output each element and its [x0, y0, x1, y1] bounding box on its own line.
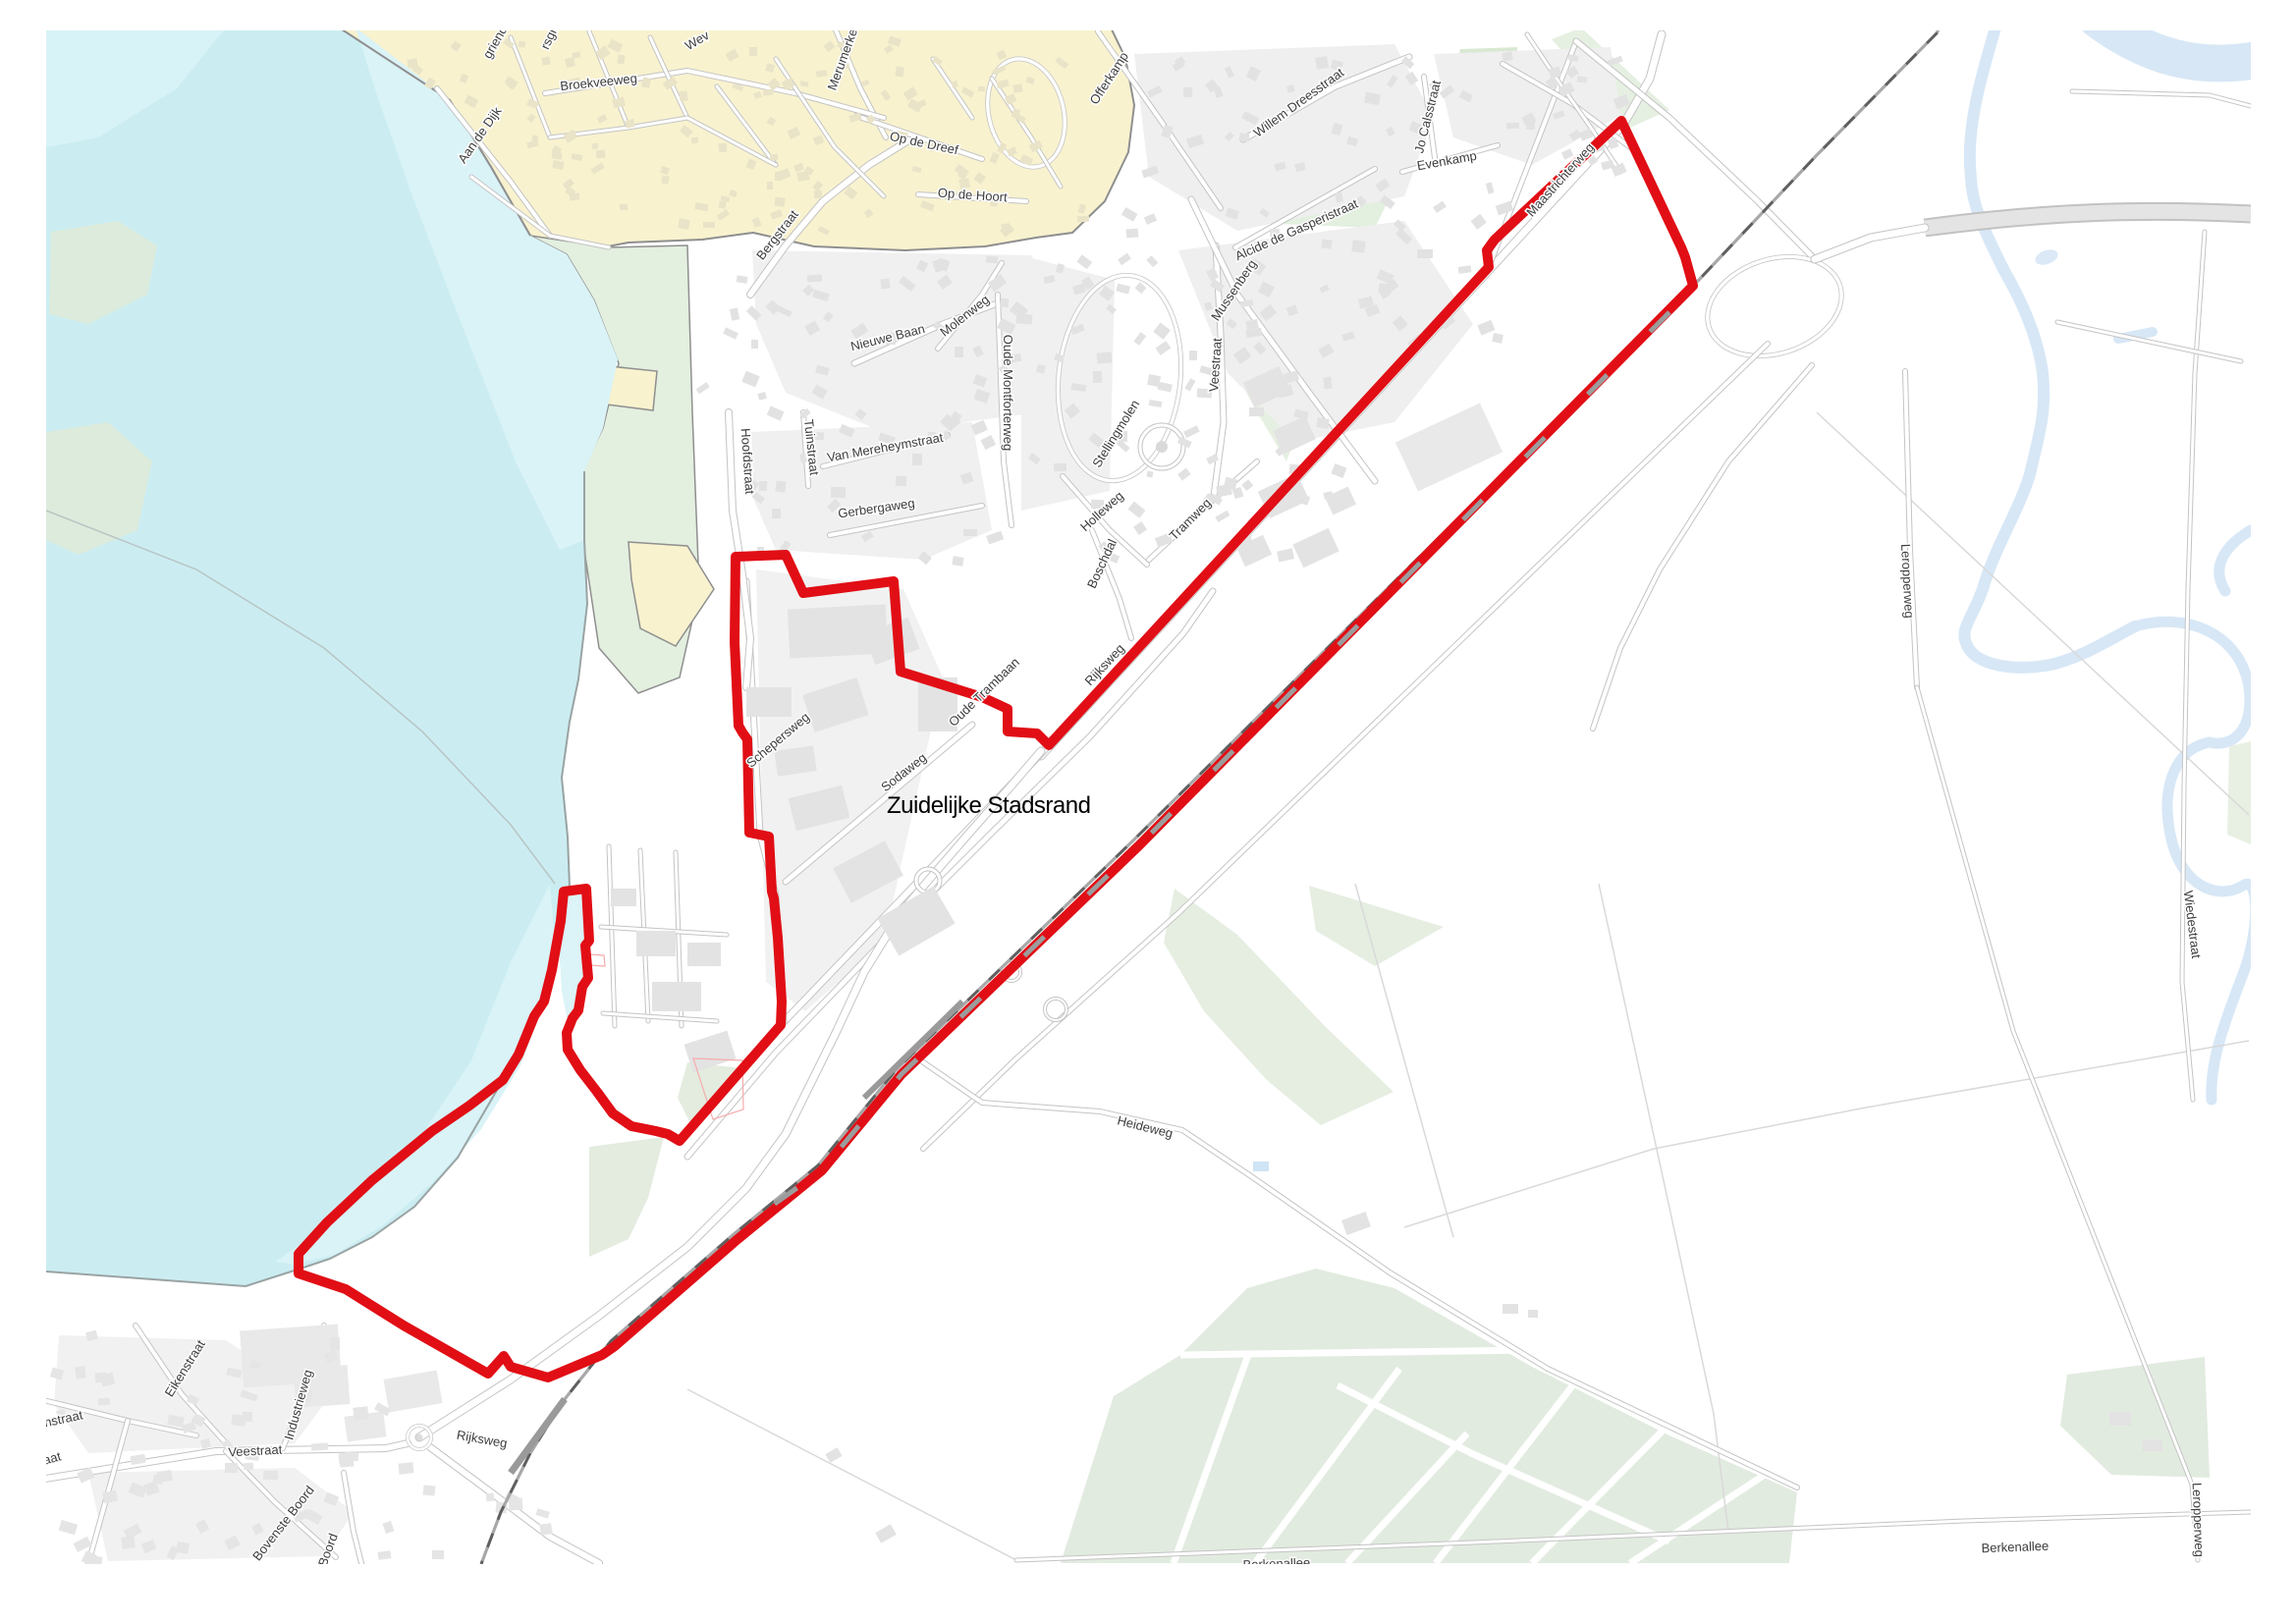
svg-text:Veestraat: Veestraat	[228, 1442, 283, 1460]
svg-text:Berkenallee: Berkenallee	[1981, 1539, 2049, 1555]
svg-text:Zuidelijke Stadsrand: Zuidelijke Stadsrand	[887, 792, 1090, 819]
svg-text:Oude Montforterweg: Oude Montforterweg	[1001, 335, 1015, 452]
svg-text:Leropperweg: Leropperweg	[2190, 1483, 2208, 1557]
